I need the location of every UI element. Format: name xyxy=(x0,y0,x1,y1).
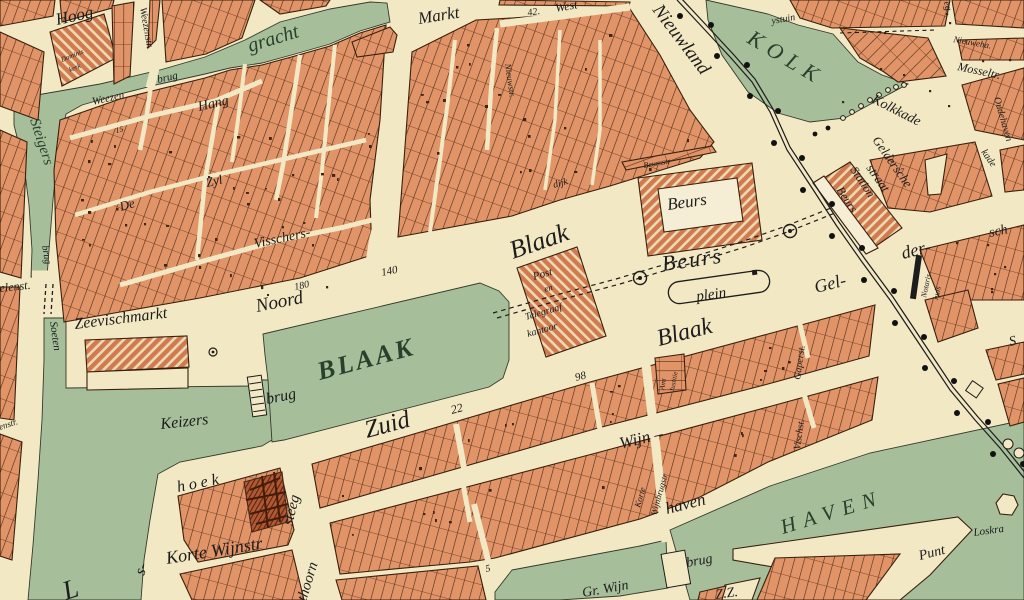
svg-text:Z.Z.: Z.Z. xyxy=(714,585,738,600)
svg-text:42.: 42. xyxy=(527,6,541,19)
